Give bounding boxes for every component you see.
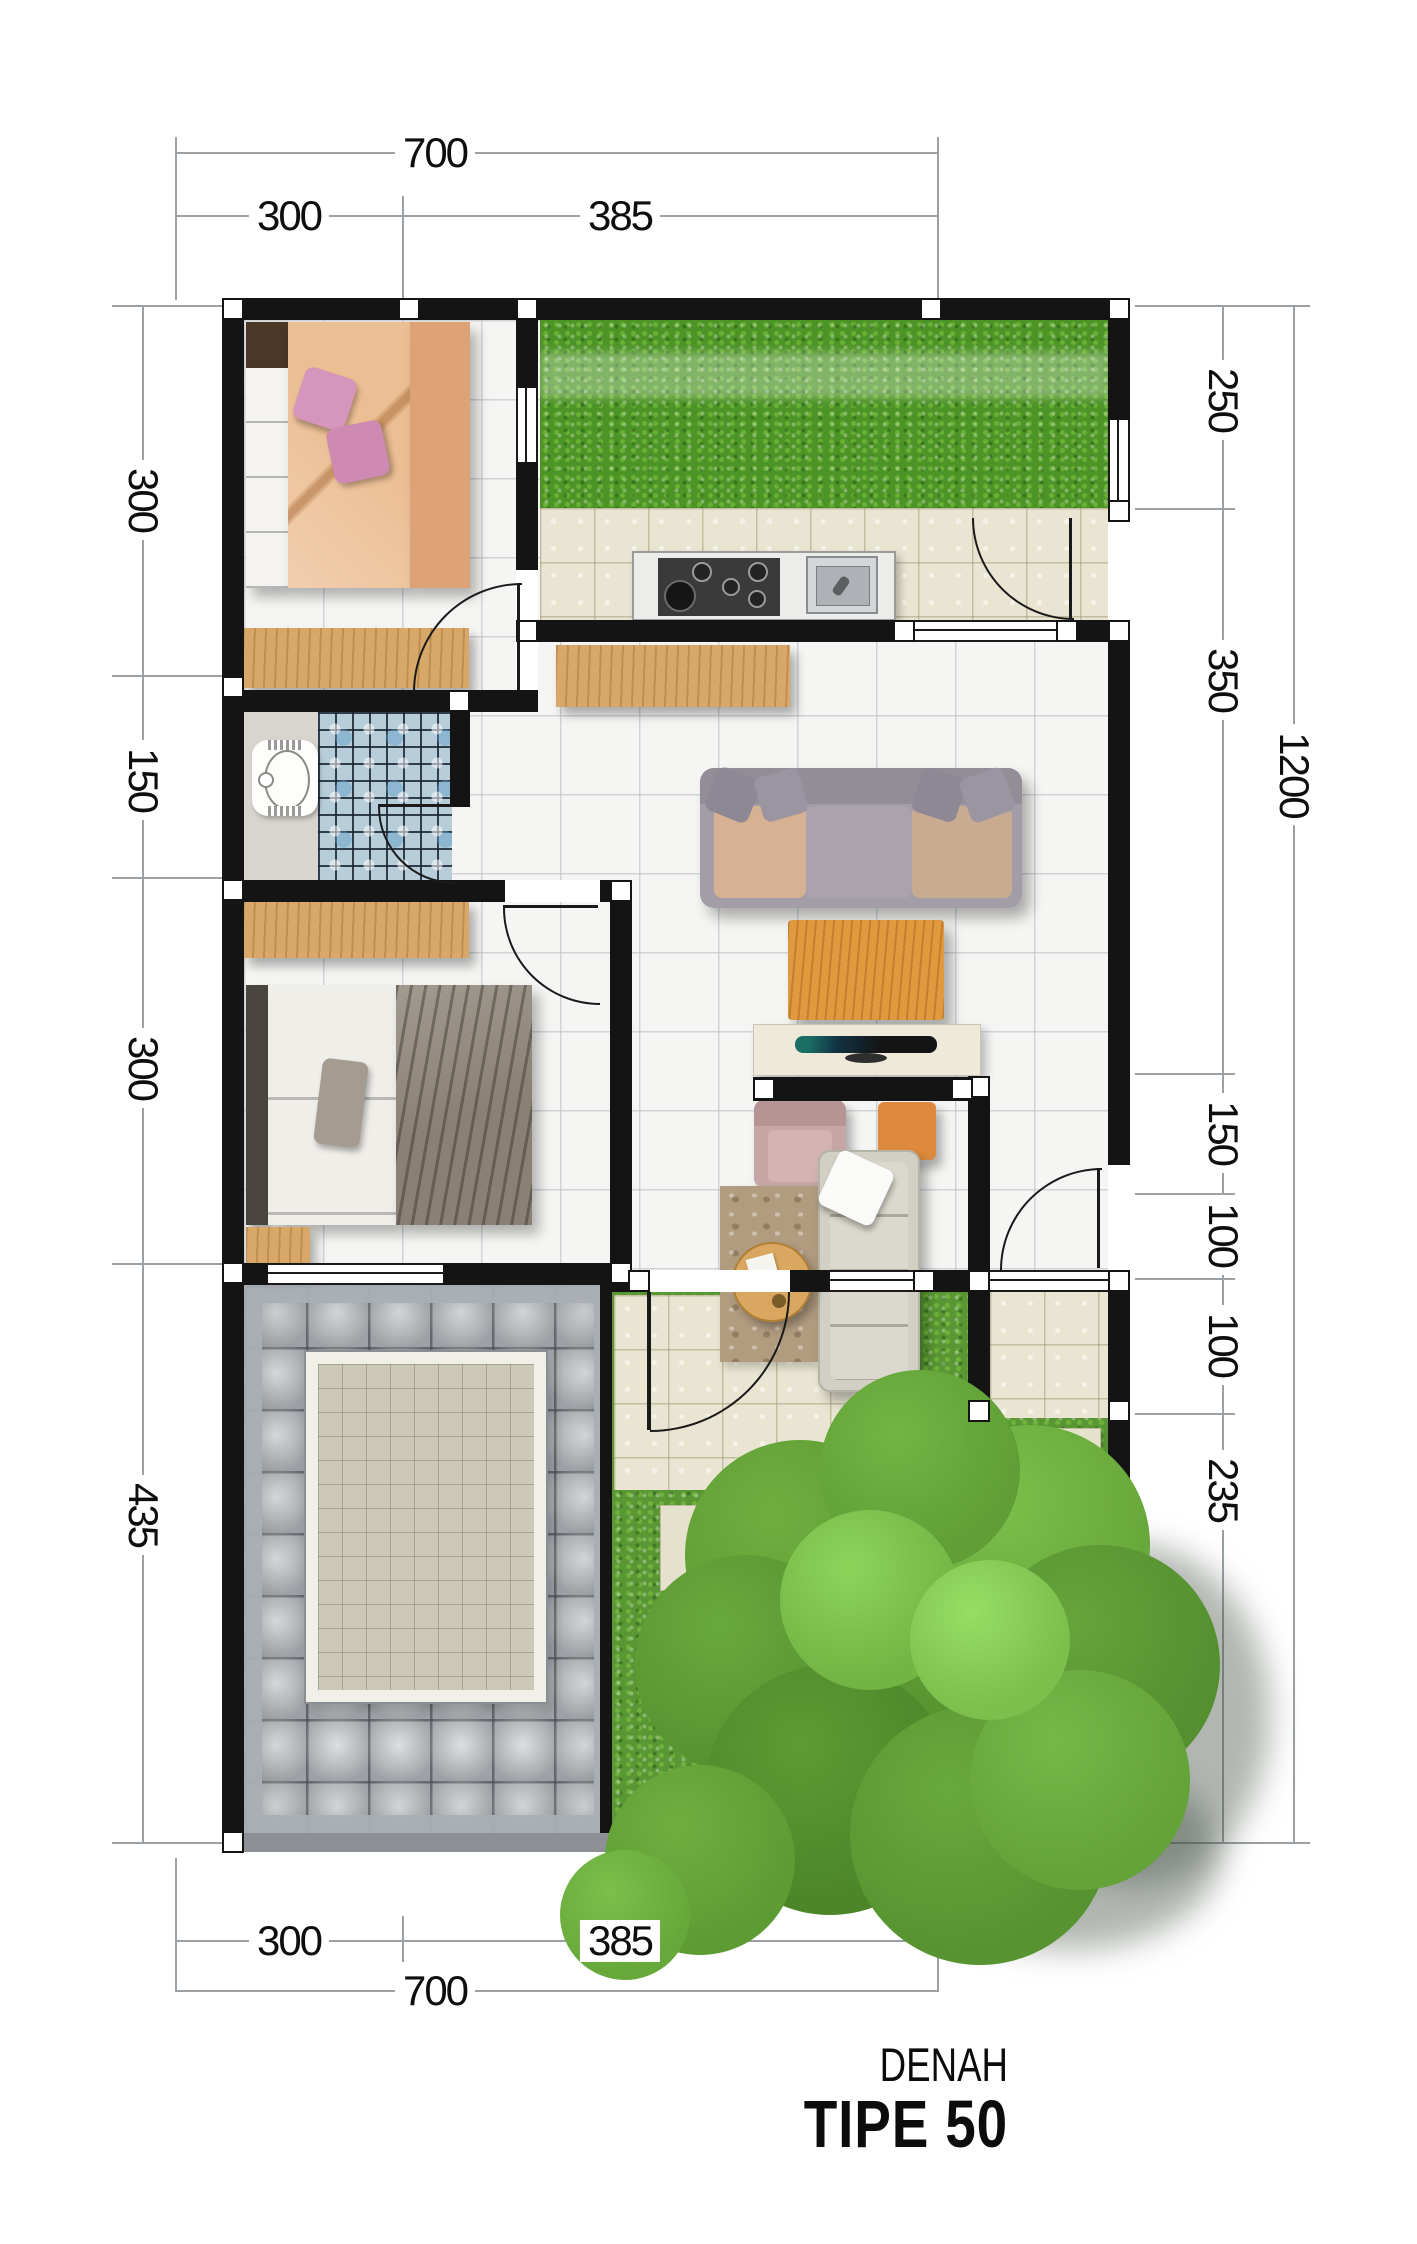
wall-segment	[610, 902, 632, 1285]
door-leaf	[1069, 518, 1072, 618]
back-garden-grass	[540, 320, 1108, 510]
column-marker	[968, 1270, 990, 1292]
stove-burner	[748, 590, 766, 608]
extension-line	[1135, 1073, 1235, 1075]
column-marker	[222, 1262, 244, 1284]
wall-segment	[1108, 625, 1130, 1165]
coffee-table	[788, 920, 944, 1020]
sideboard	[556, 645, 790, 707]
sofa	[700, 768, 1022, 908]
door-leaf	[503, 905, 598, 908]
column-marker	[951, 1078, 973, 1100]
dim-bottom-seg2: 385	[580, 1920, 660, 1962]
column-marker	[1108, 1400, 1130, 1422]
sofa-seat	[806, 806, 912, 898]
extension-line	[112, 1842, 224, 1844]
column-marker	[222, 1831, 244, 1853]
column-marker	[222, 676, 244, 698]
bed-headboard	[246, 985, 268, 1225]
dimension-line	[1293, 305, 1295, 1842]
dim-left-seg1: 300	[122, 460, 164, 540]
dim-left-seg2: 150	[122, 740, 164, 820]
column-marker	[222, 879, 244, 901]
dimension-line	[175, 152, 937, 154]
dimension-line	[175, 1990, 937, 1992]
front-door-leaf	[647, 1292, 651, 1430]
pan-icon	[664, 580, 696, 612]
column-marker	[968, 1400, 990, 1422]
window	[1108, 420, 1130, 512]
extension-line	[112, 877, 224, 879]
extension-line	[1135, 1278, 1235, 1280]
extension-line	[1135, 508, 1235, 510]
door-leaf	[517, 583, 520, 690]
toilet-flush	[258, 772, 274, 788]
drawing-title: TIPE 50	[673, 2091, 1008, 2158]
dim-right-seg3: 150	[1202, 1093, 1244, 1173]
wall-segment	[600, 1285, 612, 1833]
extension-line	[112, 305, 224, 307]
sink	[806, 556, 878, 614]
pink-pillow	[325, 419, 391, 485]
wall-segment	[968, 1076, 990, 1422]
column-marker	[913, 1270, 935, 1292]
door-leaf	[378, 804, 453, 807]
tv	[795, 1036, 937, 1053]
floor-plan: 700 300 385 300 385 700 300 150 300 435 …	[0, 0, 1417, 2244]
toilet-rib	[268, 740, 304, 750]
stove-burner	[692, 562, 712, 582]
porch-floor	[990, 1290, 1108, 1418]
window	[268, 1263, 443, 1285]
window	[905, 620, 1057, 642]
column-marker	[398, 298, 420, 320]
dim-bottom-seg1: 300	[249, 1920, 329, 1962]
extension-line	[175, 1858, 177, 1992]
toilet-rib	[268, 806, 304, 816]
sofa-seat	[912, 806, 1012, 898]
door-opening	[1108, 1165, 1130, 1272]
wall-segment	[222, 298, 1130, 320]
dim-right-overall: 1200	[1273, 724, 1315, 825]
column-marker	[1108, 620, 1130, 642]
column-marker	[448, 690, 470, 712]
column-marker	[1056, 620, 1078, 642]
window	[516, 388, 538, 462]
grass-highlight	[540, 352, 1108, 398]
extension-line	[112, 675, 224, 677]
column-marker	[628, 1270, 650, 1292]
nightstand	[246, 322, 288, 368]
wall-segment	[450, 712, 470, 807]
dim-top-seg2: 385	[580, 195, 660, 237]
stove-burner	[722, 578, 740, 596]
dim-bottom-overall: 700	[395, 1970, 475, 2012]
bed-blanket	[396, 985, 532, 1225]
floor-plan-page: 700 300 385 300 385 700 300 150 300 435 …	[0, 0, 1417, 2244]
stove-burner	[748, 562, 768, 582]
door-opening	[645, 1270, 790, 1292]
extension-line	[937, 137, 939, 300]
driveway-apron	[222, 1833, 614, 1852]
wall-segment	[1108, 320, 1130, 420]
extension-line	[402, 1916, 404, 1962]
dim-right-seg2: 350	[1202, 640, 1244, 720]
drawing-subtitle: DENAH	[690, 2040, 1008, 2089]
extension-line	[175, 137, 177, 300]
toilet	[252, 740, 318, 816]
tree-foliage-blob	[910, 1560, 1070, 1720]
door-opening	[1108, 513, 1130, 625]
tv-stand	[845, 1053, 887, 1063]
dim-right-seg1: 250	[1202, 360, 1244, 440]
carport-pad	[306, 1352, 546, 1702]
window	[990, 1270, 1108, 1292]
bed-side-fold	[410, 322, 470, 588]
door-opening	[505, 880, 600, 902]
column-marker	[222, 298, 244, 320]
door-leaf	[1097, 1168, 1100, 1268]
column-marker	[1108, 1270, 1130, 1292]
dim-right-seg6: 235	[1202, 1450, 1244, 1530]
extension-line	[1135, 1413, 1235, 1415]
column-marker	[893, 620, 915, 642]
extension-line	[112, 1263, 224, 1265]
column-marker	[1108, 298, 1130, 320]
drawing-title-block: DENAH TIPE 50	[600, 2040, 1008, 2158]
dim-top-seg1: 300	[249, 195, 329, 237]
dim-left-seg3: 300	[122, 1028, 164, 1108]
sofa-seat	[714, 806, 806, 898]
dim-right-seg5: 100	[1202, 1305, 1244, 1385]
column-marker	[1108, 500, 1130, 522]
column-marker	[610, 880, 632, 902]
wardrobe	[243, 900, 469, 958]
column-marker	[516, 298, 538, 320]
wall-segment	[753, 1077, 973, 1101]
wall-segment	[222, 320, 244, 1852]
dim-left-seg4: 435	[122, 1475, 164, 1555]
armchair-back	[754, 1100, 846, 1126]
dim-top-overall: 700	[395, 132, 475, 174]
column-marker	[920, 298, 942, 320]
wall-segment	[222, 690, 538, 712]
extension-line	[1135, 305, 1310, 307]
dim-right-seg4: 100	[1202, 1195, 1244, 1275]
column-marker	[753, 1078, 775, 1100]
bed-pillows	[246, 368, 288, 588]
